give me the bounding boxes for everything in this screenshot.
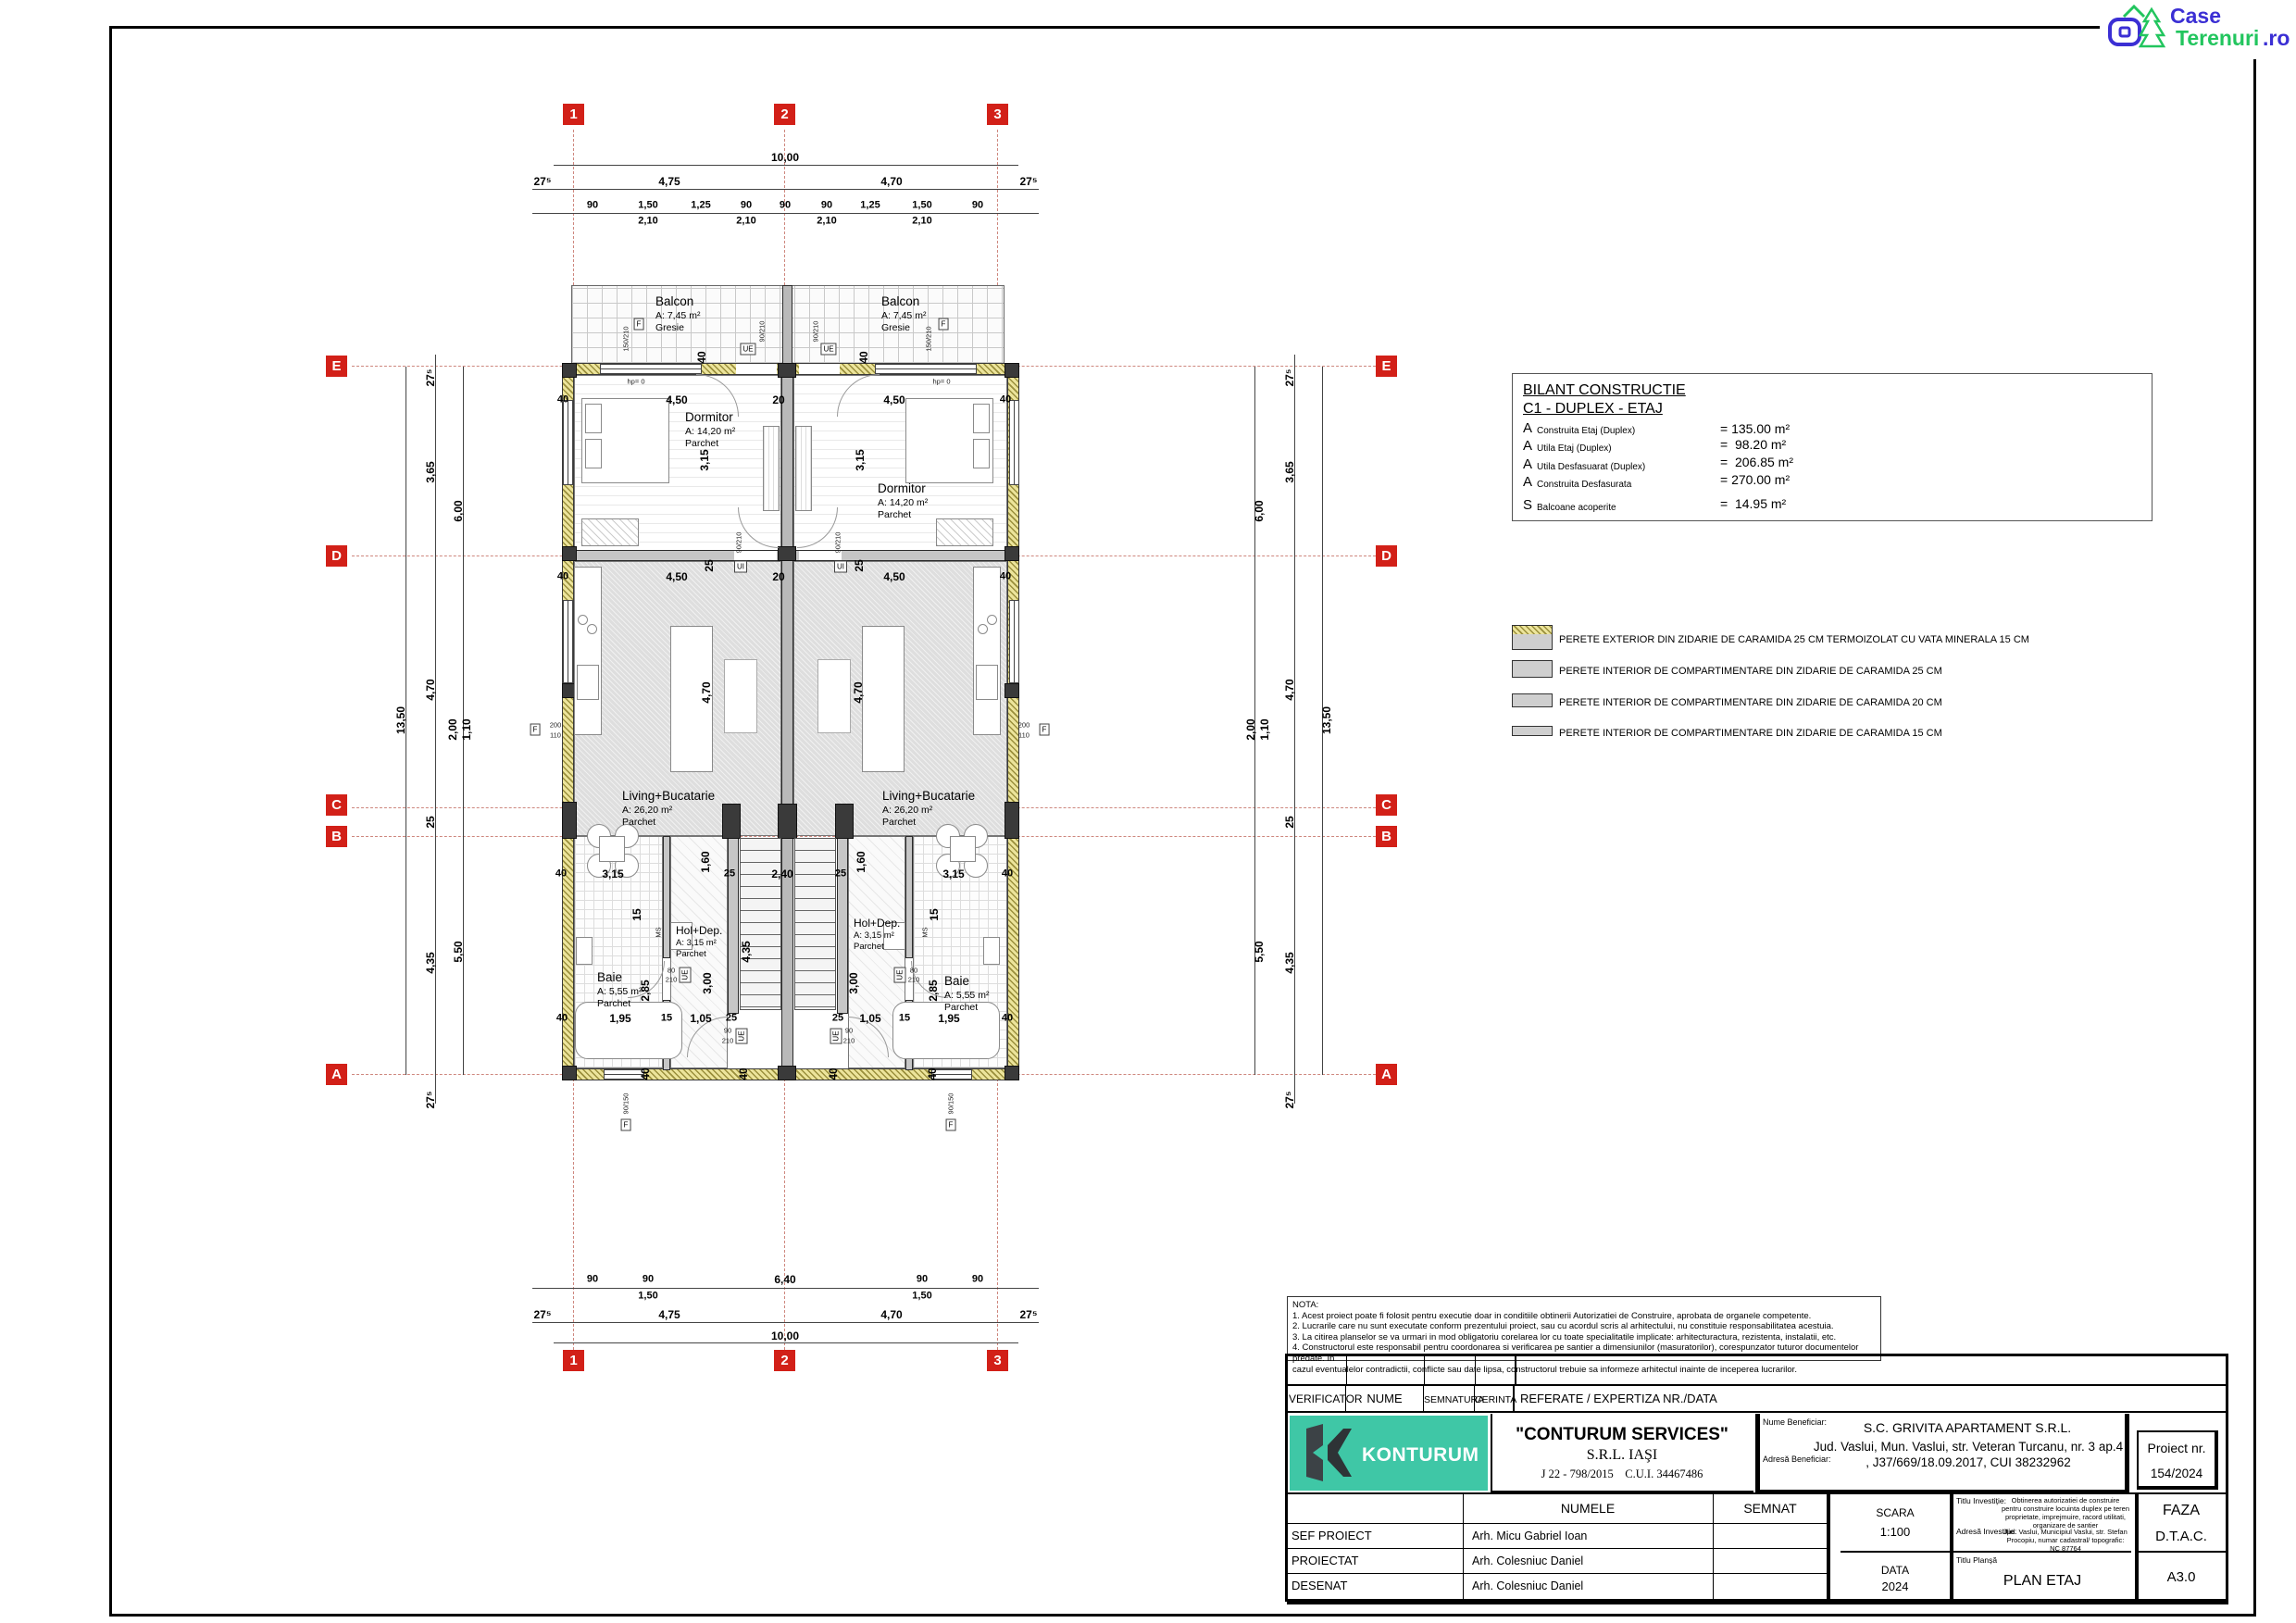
pillow <box>585 439 602 468</box>
dim-label: 27⁵ <box>1020 1309 1038 1320</box>
grid-bubble-E-left: E <box>326 356 347 377</box>
window <box>1009 600 1019 683</box>
grid-bubble-A-right: A <box>1376 1064 1397 1085</box>
dim-label: 90 <box>972 1275 983 1285</box>
dim-label: 40 <box>1002 1014 1013 1024</box>
dim-label: 10,00 <box>771 152 799 163</box>
grid-bubble-E-right: E <box>1376 356 1397 377</box>
dim-label: 4,50 <box>666 571 687 582</box>
closet <box>763 426 780 511</box>
window-size-tag: 90/150 <box>947 1093 955 1115</box>
dim-label: 2,00 <box>447 718 458 740</box>
dim-label: 1,95 <box>609 1013 630 1024</box>
dim-label: 2,10 <box>912 217 931 227</box>
door-size-tag: 90/210 <box>812 321 819 343</box>
dim-label: 1,05 <box>859 1013 880 1024</box>
site-logo-text-ro: .ro <box>2263 28 2290 49</box>
nota-line: NOTA: <box>1292 1300 1876 1311</box>
dim-label: 4,50 <box>883 571 905 582</box>
dim-label: 2,40 <box>771 868 792 880</box>
bath-sink <box>983 937 1000 965</box>
room-label-baie-left: Baie A: 5,55 m² Parchet <box>597 970 642 1010</box>
coffee-table <box>817 659 851 733</box>
dim-label: 27⁵ <box>425 369 436 387</box>
staff-numele-header: NUMELE <box>1561 1502 1615 1515</box>
scara-label: SCARA <box>1876 1507 1914 1518</box>
grid-bubble-1-top: 1 <box>563 104 584 125</box>
dim-label: 25 <box>724 869 735 880</box>
bilant-label: Construita Desfasurata <box>1537 481 1631 490</box>
divider <box>1346 1355 1347 1386</box>
pier <box>1004 546 1019 561</box>
wardrobe <box>936 518 993 546</box>
legend-swatch-25 <box>1512 660 1553 678</box>
dim-line <box>532 1288 1039 1289</box>
grid-bubble-C-right: C <box>1376 794 1397 816</box>
window <box>563 400 573 485</box>
header-referate: REFERATE / EXPERTIZA NR./DATA <box>1515 1386 2227 1413</box>
dim-label: 5,50 <box>1254 941 1265 962</box>
wall-stair-left <box>728 808 739 1014</box>
divider <box>1424 1355 1425 1386</box>
grid-bubble-1-bottom: 1 <box>563 1350 584 1371</box>
appliance-tag-MS: MS <box>921 927 929 937</box>
dim-label: 2,00 <box>1245 718 1256 740</box>
door-tag-UE: UE <box>736 1028 748 1043</box>
dim-label: 27⁵ <box>534 176 552 187</box>
data-label: DATA <box>1881 1565 1909 1576</box>
dim-label: 25 <box>704 559 715 571</box>
window-tag-F: F <box>939 318 949 331</box>
legend-swatch-20 <box>1512 693 1553 707</box>
dim-label: 27⁵ <box>1020 176 1038 187</box>
bilant-symbol: A <box>1523 439 1532 453</box>
dim-label: 40 <box>858 351 869 363</box>
door-size-tag: 90 <box>845 1027 853 1034</box>
pier <box>1004 363 1019 378</box>
investitie-value: Obtinerea autorizatiei de construire pen… <box>2002 1496 2129 1529</box>
dim-line <box>554 1342 1018 1343</box>
dining-table <box>950 836 976 862</box>
bilant-title: BILANT CONSTRUCTIE <box>1523 381 1686 399</box>
coffee-table <box>724 659 757 733</box>
dim-line <box>532 213 1039 214</box>
pier <box>1004 683 1019 698</box>
dim-label: 40 <box>1000 572 1011 582</box>
staff-name: Arh. Micu Gabriel Ioan <box>1472 1530 1587 1542</box>
dim-label: 40 <box>557 395 568 406</box>
dim-label: 4,70 <box>425 679 436 700</box>
pier <box>1004 802 1019 839</box>
dim-label: 5,50 <box>453 941 464 962</box>
dim-label: 27⁵ <box>534 1309 552 1320</box>
door-size-tag: 90/210 <box>735 532 742 554</box>
door-size-tag: 80 <box>910 967 917 974</box>
pier <box>722 804 741 839</box>
dim-label: 40 <box>555 869 567 880</box>
pier <box>562 1066 577 1080</box>
dim-label: 40 <box>1002 869 1013 880</box>
legend-swatch-exterior <box>1512 625 1553 650</box>
legend-label: PERETE EXTERIOR DIN ZIDARIE DE CARAMIDA … <box>1559 634 2029 646</box>
dim-line <box>532 189 1039 190</box>
investitie-label: Titlu Investiție: <box>1956 1497 2006 1505</box>
door-tag-UE: UE <box>740 343 755 356</box>
dim-label: 3,15 <box>855 449 866 470</box>
bilant-label: Utila Etaj (Duplex) <box>1537 444 1612 454</box>
proiect-label: Proiect nr. <box>2147 1442 2205 1454</box>
investitie-addr-value: Jud. Vaslui, Municipiul Vaslui, str. Ste… <box>2002 1528 2129 1553</box>
bilant-value: = 14.95 m² <box>1720 497 1786 510</box>
dim-label: 2,10 <box>638 217 657 227</box>
plansa-label: Titlu Planșă <box>1956 1556 1997 1565</box>
dim-label: 90 <box>917 1275 928 1285</box>
dim-label: 25 <box>425 816 436 828</box>
pier <box>835 804 854 839</box>
divider <box>1475 1355 1476 1386</box>
grid-bubble-2-bottom: 2 <box>774 1350 795 1371</box>
dining-table <box>599 836 625 862</box>
bilant-label: Utila Desfasuarat (Duplex) <box>1537 463 1645 472</box>
balcony-door-opening <box>736 364 777 374</box>
room-label-living-right: Living+Bucatarie A: 26,20 m² Parchet <box>882 789 975 829</box>
dim-label: 3,15 <box>699 449 710 470</box>
verificator-empty-row <box>1287 1355 2227 1386</box>
nota-line: 3. La citirea planselor se va urmari in … <box>1292 1332 1876 1343</box>
divider <box>1287 1523 1828 1524</box>
legend-label: PERETE INTERIOR DE COMPARTIMENTARE DIN Z… <box>1559 697 1942 709</box>
nota-box: NOTA: 1. Acest proiect poate fi folosit … <box>1287 1296 1881 1361</box>
bilant-symbol: A <box>1523 475 1532 489</box>
wardrobe <box>581 518 639 546</box>
stairs-right <box>794 838 836 1010</box>
divider <box>1463 1492 1464 1599</box>
dim-label: 27⁵ <box>1284 1092 1295 1109</box>
grid-bubble-C-left: C <box>326 794 347 816</box>
bath-sink <box>576 937 593 965</box>
window <box>563 600 573 683</box>
dim-label: 4,75 <box>658 1309 680 1320</box>
dim-label: 4,50 <box>666 394 687 406</box>
room-label-living-left: Living+Bucatarie A: 26,20 m² Parchet <box>622 789 715 829</box>
parapet-tag: hp= 0 <box>628 378 645 385</box>
dim-label: 15 <box>631 908 643 920</box>
sink-bowl <box>987 615 997 625</box>
dim-label: 25 <box>1284 816 1295 828</box>
titleblock-shadow <box>1287 1599 2228 1604</box>
dim-label: 10,00 <box>771 1330 799 1342</box>
dim-label: 90 <box>741 201 752 211</box>
dim-label: 20 <box>772 571 784 582</box>
room-label-balcon-right: Balcon A: 7,45 m² Gresie <box>881 294 926 334</box>
dim-label: 4,35 <box>741 941 752 962</box>
appliance-tag-MS: MS <box>655 927 662 937</box>
pier <box>562 802 577 839</box>
dim-label: 6,40 <box>774 1274 795 1285</box>
grid-bubble-D-left: D <box>326 545 347 567</box>
dim-label: 1,05 <box>690 1013 711 1024</box>
sofa <box>862 626 905 772</box>
dim-label: 25 <box>832 1014 843 1024</box>
legend-swatch-15 <box>1512 726 1553 736</box>
door-size-tag: 210 <box>722 1037 734 1044</box>
dim-label: 4,70 <box>880 1309 902 1320</box>
window-tag-F: F <box>634 318 644 331</box>
dim-label: 15 <box>899 1014 910 1024</box>
door-tag-UI: UI <box>734 561 747 573</box>
bilant-value: = 98.20 m² <box>1720 438 1786 451</box>
dim-label: 90 <box>972 201 983 211</box>
dim-label: 4,35 <box>1284 952 1295 973</box>
nota-line: 1. Acest proiect poate fi folosit pentru… <box>1292 1311 1876 1322</box>
dim-label: 90 <box>780 201 791 211</box>
dim-label: 4,35 <box>425 952 436 973</box>
balcony-door-opening <box>799 364 840 374</box>
scara-value: 1:100 <box>1880 1526 1911 1538</box>
data-value: 2024 <box>1882 1580 1909 1592</box>
door-tag-UE: UE <box>894 967 906 982</box>
nota-line: 2. Lucrarile care nu sunt executate conf… <box>1292 1321 1876 1332</box>
grid-bubble-A-left: A <box>326 1064 347 1085</box>
parapet-tag: hp= 0 <box>933 378 951 385</box>
bathtub <box>575 1002 682 1059</box>
dim-label: 1,25 <box>860 201 880 211</box>
drawing-sheet: Case Terenuri .ro 1 2 3 1 2 3 E D C B A … <box>0 0 2296 1623</box>
dim-line <box>554 165 1018 166</box>
dim-label: 2,85 <box>928 980 939 1001</box>
door-size-tag: 90/210 <box>834 532 842 554</box>
grid-bubble-B-right: B <box>1376 826 1397 847</box>
sink-bowl <box>587 624 597 634</box>
door-tag-UI: UI <box>834 561 847 573</box>
dim-label: 3,00 <box>848 972 859 993</box>
grid-bubble-3-bottom: 3 <box>987 1350 1008 1371</box>
konturum-wordmark: KONTURUM <box>1362 1445 1479 1465</box>
window-tag-F: F <box>946 1119 956 1131</box>
dim-label: 6,00 <box>453 500 464 521</box>
pier <box>778 804 797 839</box>
dim-label: 4,70 <box>880 176 902 187</box>
legend-label: PERETE INTERIOR DE COMPARTIMENTARE DIN Z… <box>1559 666 1942 678</box>
dim-label: 90 <box>821 201 832 211</box>
beneficiar-name-label: Nume Beneficiar: <box>1763 1418 1827 1428</box>
dim-label: 1,60 <box>855 851 867 872</box>
kitchen-sink <box>577 665 599 700</box>
header-cerinta: CERINTA <box>1475 1386 1515 1413</box>
dim-label: 2,10 <box>817 217 836 227</box>
wall-party <box>781 363 793 1080</box>
site-logo[interactable]: Case Terenuri .ro <box>2100 0 2296 59</box>
konturum-logo: KONTURUM <box>1290 1416 1488 1491</box>
kitchen-counter <box>574 567 602 735</box>
dim-label: 3,65 <box>425 461 436 482</box>
window-size-tag: 200 <box>550 721 562 729</box>
room-label-dormitor-left: Dormitor A: 14,20 m² Parchet <box>685 410 735 450</box>
pier <box>562 546 577 561</box>
dim-label: 40 <box>696 351 707 363</box>
dim-label: 1,95 <box>938 1013 959 1024</box>
bilant-label: Construita Etaj (Duplex) <box>1537 427 1635 436</box>
pier <box>778 1066 796 1080</box>
proiect-value: 154/2024 <box>2151 1467 2202 1480</box>
dim-label: 2,10 <box>736 217 755 227</box>
window-tag-F: F <box>530 724 541 736</box>
bilant-symbol: A <box>1523 421 1532 435</box>
faza-label: FAZA <box>2163 1504 2200 1518</box>
dim-label: 25 <box>726 1014 737 1024</box>
divider <box>1713 1492 1714 1599</box>
site-logo-text-terenuri: Terenuri <box>2176 28 2259 49</box>
window-tag-F: F <box>1040 724 1050 736</box>
door-tag-UE: UE <box>830 1028 842 1043</box>
dim-label: 25 <box>835 869 846 880</box>
beneficiar-name-value: S.C. GRIVITA APARTAMENT S.R.L. <box>1824 1420 2111 1437</box>
grid-bubble-2-top: 2 <box>774 104 795 125</box>
dim-label: 90 <box>643 1275 654 1285</box>
pier <box>778 546 796 561</box>
dim-label: 15 <box>661 1014 672 1024</box>
dim-label: 3,15 <box>942 868 964 880</box>
divider <box>1515 1355 1516 1386</box>
scara-cell <box>1841 1494 1950 1553</box>
pier <box>1004 1066 1019 1080</box>
dim-label: 40 <box>1000 395 1011 406</box>
dim-label: 27⁵ <box>1284 369 1295 387</box>
dim-label: 3,65 <box>1284 461 1295 482</box>
staff-name: Arh. Colesniuc Daniel <box>1472 1580 1583 1592</box>
grid-bubble-B-left: B <box>326 826 347 847</box>
room-label-hol-right: Hol+Dep. A: 3,15 m² Parchet <box>854 917 900 953</box>
site-logo-text-case: Case <box>2170 6 2221 27</box>
divider <box>1827 1492 1830 1599</box>
room-label-balcon-left: Balcon A: 7,45 m² Gresie <box>655 294 700 334</box>
company-name: "CONTURUM SERVICES" <box>1516 1426 1728 1443</box>
dim-label: 13,50 <box>395 706 406 734</box>
dim-label: 15 <box>929 908 940 920</box>
dim-label: 6,00 <box>1254 500 1265 521</box>
dim-label: 13,50 <box>1321 706 1332 734</box>
divider <box>1287 1548 1828 1549</box>
konturum-k-icon <box>1297 1421 1354 1489</box>
pier <box>778 363 796 378</box>
bilant-subtitle: C1 - DUPLEX - ETAJ <box>1523 400 1663 418</box>
staff-role: SEF PROIECT <box>1291 1529 1372 1542</box>
grid-bubble-D-right: D <box>1376 545 1397 567</box>
company-srl: S.R.L. IAŞI <box>1587 1448 1657 1463</box>
plansa-value: PLAN ETAJ <box>2003 1574 2081 1589</box>
window-size-tag: 110 <box>550 731 561 739</box>
dim-label: 90 <box>587 1275 598 1285</box>
dim-label: 1,50 <box>912 1292 931 1302</box>
door-size-tag: 90/210 <box>758 321 766 343</box>
door-size-tag: 210 <box>843 1037 855 1044</box>
dim-label: 40 <box>738 1067 749 1080</box>
dim-label: 3,15 <box>602 868 623 880</box>
dim-label: 25 <box>854 559 865 571</box>
window-tag-F: F <box>621 1119 631 1131</box>
bilant-value: = 135.00 m² <box>1720 422 1790 435</box>
bilant-value: = 206.85 m² <box>1720 456 1793 468</box>
sink-bowl <box>978 624 988 634</box>
dim-label: 20 <box>772 394 784 406</box>
window <box>1009 400 1019 485</box>
dim-label: 1,50 <box>912 201 931 211</box>
wall-baie-right <box>905 836 913 958</box>
faza-value: D.T.A.C. <box>2155 1529 2207 1543</box>
window <box>600 364 702 374</box>
beneficiar-addr-value: Jud. Vaslui, Mun. Vaslui, str. Veteran T… <box>1813 1439 2124 1470</box>
pillow <box>973 439 990 468</box>
bilant-symbol: S <box>1523 498 1532 512</box>
pier <box>562 363 577 378</box>
window-size-tag: 110 <box>1018 731 1029 739</box>
dim-label: 1,60 <box>700 851 711 872</box>
staff-name: Arh. Colesniuc Daniel <box>1472 1555 1583 1567</box>
staff-role: PROIECTAT <box>1291 1554 1358 1567</box>
dim-label: 1,50 <box>638 201 657 211</box>
dim-line <box>532 1322 1039 1323</box>
window <box>875 364 977 374</box>
door-size-tag: 210 <box>908 976 920 983</box>
dim-label: 2,85 <box>640 980 651 1001</box>
bilant-value: = 270.00 m² <box>1720 473 1790 486</box>
dim-label: 1,25 <box>691 201 710 211</box>
door-size-tag: 90 <box>724 1027 731 1034</box>
dim-label: 90 <box>587 201 598 211</box>
window-size-tag: 90/150 <box>622 1093 630 1115</box>
pillow <box>973 404 990 433</box>
staff-semnat-header: SEMNAT <box>1743 1502 1796 1515</box>
door-tag-UE: UE <box>680 967 692 982</box>
divider <box>1287 1573 1828 1574</box>
dim-label: 4,70 <box>853 681 864 703</box>
dim-label: 40 <box>556 1014 568 1024</box>
header-nume: NUME <box>1346 1386 1424 1413</box>
kitchen-sink <box>976 665 998 700</box>
legend-label: PERETE INTERIOR DE COMPARTIMENTARE DIN Z… <box>1559 728 1942 740</box>
door-size-tag: 80 <box>668 967 675 974</box>
room-label-baie-right: Baie A: 5,55 m² Parchet <box>944 974 989 1014</box>
bilant-label: Balcoane acoperite <box>1537 504 1616 513</box>
dim-label: 1,10 <box>1259 718 1270 740</box>
site-logo-house-icon <box>2105 2 2166 60</box>
window-size-tag: 150/210 <box>622 326 630 351</box>
wall-baie-left <box>663 836 670 958</box>
kitchen-counter <box>973 567 1001 735</box>
door-size-tag: 210 <box>666 976 678 983</box>
staff-role: DESENAT <box>1291 1579 1347 1592</box>
room-label-hol-left: Hol+Dep. A: 3,15 m² Parchet <box>676 924 722 960</box>
grid-bubble-3-top: 3 <box>987 104 1008 125</box>
header-verificator: VERIFICATOR <box>1287 1386 1346 1413</box>
door-tag-UE: UE <box>820 343 836 356</box>
dim-label: 4,70 <box>1284 679 1295 700</box>
dim-label: 1,10 <box>461 718 472 740</box>
sheet-number: A3.0 <box>2167 1570 2196 1584</box>
stairs-left <box>740 838 781 1010</box>
dim-label: 40 <box>927 1067 938 1080</box>
window-size-tag: 150/210 <box>925 326 932 351</box>
proiect-box <box>2137 1430 2218 1490</box>
dim-label: 27⁵ <box>425 1092 436 1109</box>
closet <box>795 426 812 511</box>
header-semnatura: SEMNATURA <box>1424 1386 1475 1413</box>
room-label-dormitor-right: Dormitor A: 14,20 m² Parchet <box>878 481 928 521</box>
sink-bowl <box>578 615 588 625</box>
dim-label: 1,50 <box>638 1292 657 1302</box>
bilant-symbol: A <box>1523 457 1532 471</box>
dim-label: 4,75 <box>658 176 680 187</box>
